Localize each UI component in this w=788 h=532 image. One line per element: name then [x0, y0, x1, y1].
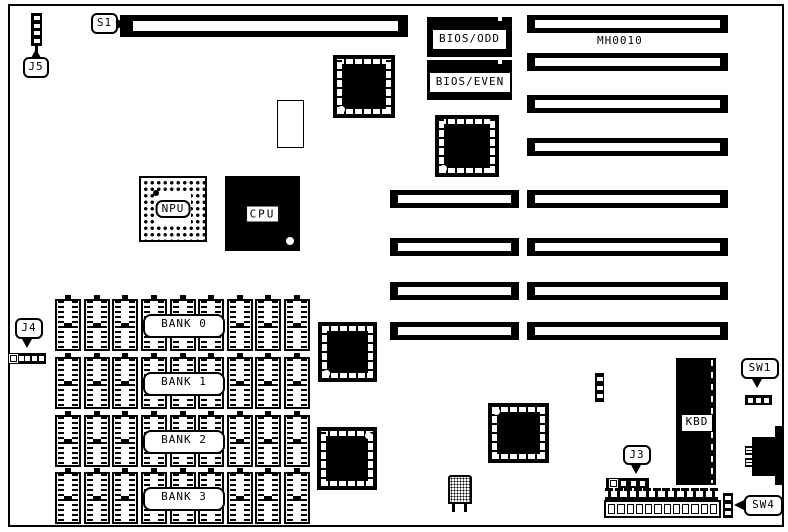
memory-bank-0: BANK 0	[55, 299, 310, 351]
pin1-dot	[365, 432, 372, 439]
callout-j4: J4	[15, 318, 43, 339]
dip-chip	[84, 415, 110, 467]
memory-bank-3: BANK 3	[55, 472, 310, 524]
bank-2-label: BANK 2	[143, 430, 225, 454]
callout-sw4: SW4	[744, 495, 783, 516]
dip-chip	[227, 357, 253, 409]
memory-bank-2: BANK 2	[55, 415, 310, 467]
dip-chip	[112, 357, 138, 409]
crystal-oscillator	[448, 475, 472, 504]
dip-chip	[55, 299, 81, 351]
sw1-pointer	[752, 379, 762, 388]
expansion-slot-8	[527, 322, 728, 340]
slot-extension-7	[390, 282, 519, 300]
callout-sw1: SW1	[741, 358, 779, 379]
dip-chip	[55, 357, 81, 409]
board-model-text: MH0010	[597, 34, 643, 47]
expansion-slot-1	[527, 15, 728, 33]
dip-chip	[227, 472, 253, 524]
dip-chip	[227, 415, 253, 467]
dip-chip	[84, 299, 110, 351]
crystal-leg	[464, 504, 467, 512]
bios-even-chip: BIOS/EVEN	[427, 60, 512, 100]
pin1-dot	[440, 165, 447, 172]
dip-chip	[284, 299, 310, 351]
bios-odd-label: BIOS/ODD	[432, 29, 507, 50]
npu-label: NPU	[156, 200, 191, 218]
bank-3-label: BANK 3	[143, 487, 225, 511]
keyboard-din-connector	[752, 437, 776, 476]
crystal-leg	[452, 504, 455, 512]
din-tab	[745, 446, 753, 455]
npu-socket: NPU	[139, 176, 207, 242]
qfp-chip-3	[318, 322, 377, 382]
sw4-switch	[723, 493, 733, 518]
dip-chip	[255, 299, 281, 351]
dip-chip	[255, 357, 281, 409]
slot-extension-8	[390, 322, 519, 340]
dip-chip	[284, 472, 310, 524]
qfp-chip-1	[333, 55, 395, 118]
bios-odd-chip: BIOS/ODD	[427, 17, 512, 57]
power-connector-pins	[605, 488, 718, 497]
expansion-slot-2	[527, 53, 728, 71]
pin1-dot	[153, 190, 159, 196]
callout-j5: J5	[23, 57, 49, 78]
bank-0-label: BANK 0	[143, 314, 225, 338]
memory-bank-1: BANK 1	[55, 357, 310, 409]
dip-chip	[112, 415, 138, 467]
j5-connector	[31, 13, 42, 46]
din-tab	[745, 458, 753, 467]
kbd-controller-chip: KBD	[676, 358, 716, 485]
callout-s1: S1	[91, 13, 118, 34]
expansion-slot-5	[527, 190, 728, 208]
dip-chip	[84, 472, 110, 524]
dip-chip	[55, 415, 81, 467]
j4-connector	[8, 353, 46, 364]
qfp-chip-2	[435, 115, 499, 177]
keyboard-din-edge	[775, 426, 784, 485]
motherboard-diagram: J5 S1 BIOS/ODD BIOS/EVEN MH0010	[0, 0, 788, 532]
pin1-dot	[338, 106, 345, 113]
expansion-slot-4	[527, 138, 728, 156]
qfp-chip-5	[488, 403, 549, 463]
j3-pointer	[631, 465, 641, 474]
cpu-chip: CPU	[225, 176, 300, 251]
dip-chip	[284, 415, 310, 467]
pin1-dot	[286, 237, 294, 245]
dip-chip	[112, 472, 138, 524]
dip-chip	[284, 357, 310, 409]
callout-j3: J3	[623, 445, 651, 465]
dip-chip	[112, 299, 138, 351]
pin1-dot	[323, 370, 330, 377]
small-connector	[595, 373, 604, 402]
power-connector-body	[604, 500, 721, 518]
dip-chip	[255, 415, 281, 467]
kbd-label: KBD	[681, 414, 713, 432]
cpu-label: CPU	[246, 205, 280, 222]
slot-extension-6	[390, 238, 519, 256]
sw1-switch	[745, 395, 772, 405]
expansion-slot-7	[527, 282, 728, 300]
sw4-pointer	[734, 500, 744, 510]
empty-socket	[277, 100, 304, 148]
bios-even-label: BIOS/EVEN	[429, 72, 511, 93]
dip-chip	[84, 357, 110, 409]
s1-pointer	[117, 19, 127, 29]
bank-1-label: BANK 1	[143, 372, 225, 396]
dip-chip	[55, 472, 81, 524]
slot-s1	[120, 15, 408, 37]
dip-chip	[255, 472, 281, 524]
expansion-slot-6	[527, 238, 728, 256]
expansion-slot-3	[527, 95, 728, 113]
dip-chip	[227, 299, 253, 351]
qfp-chip-4	[317, 427, 377, 490]
j4-pointer	[22, 339, 32, 348]
slot-extension-5	[390, 190, 519, 208]
pin1-dot	[493, 408, 500, 415]
j3-connector	[606, 478, 649, 488]
